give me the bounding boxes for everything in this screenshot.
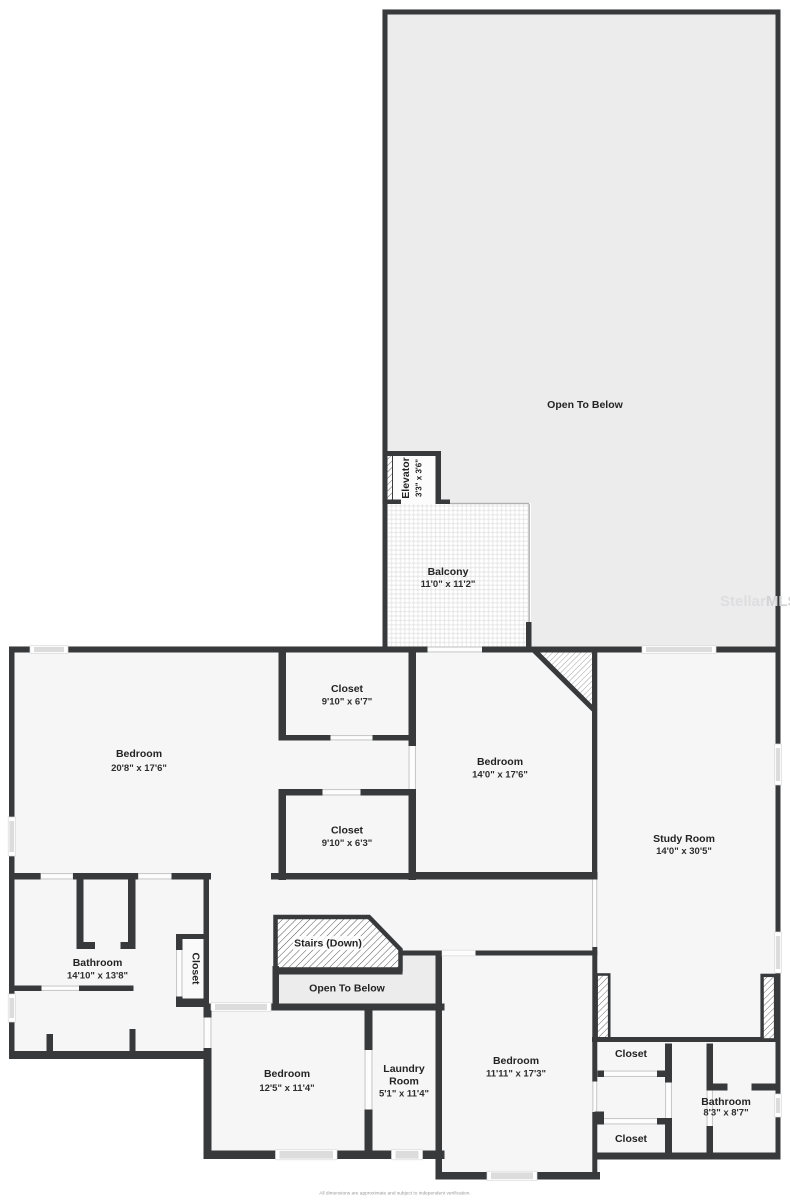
svg-text:11'11" x 17'3": 11'11" x 17'3" — [486, 1069, 546, 1080]
svg-text:Closet: Closet — [615, 1133, 648, 1145]
svg-text:Closet: Closet — [615, 1048, 648, 1060]
svg-text:Laundry: Laundry — [383, 1063, 425, 1075]
svg-text:Bedroom: Bedroom — [493, 1055, 539, 1067]
svg-text:Bedroom: Bedroom — [264, 1068, 310, 1080]
svg-text:Open To Below: Open To Below — [547, 399, 623, 411]
svg-text:Stairs (Down): Stairs (Down) — [294, 938, 362, 950]
svg-text:11'0" x 11'2": 11'0" x 11'2" — [421, 579, 476, 590]
svg-text:14'0" x 30'5": 14'0" x 30'5" — [656, 846, 712, 857]
svg-text:Elevator: Elevator — [400, 457, 412, 498]
svg-text:Bathroom: Bathroom — [73, 957, 123, 969]
svg-text:9'10" x 6'3": 9'10" x 6'3" — [322, 838, 373, 849]
svg-text:12'5" x 11'4": 12'5" x 11'4" — [259, 1083, 314, 1094]
svg-text:20'8" x 17'6": 20'8" x 17'6" — [111, 763, 167, 774]
svg-text:Closet: Closet — [331, 825, 364, 837]
svg-text:Bedroom: Bedroom — [116, 748, 162, 760]
svg-text:14'10" x 13'8": 14'10" x 13'8" — [67, 971, 128, 982]
svg-text:Room: Room — [389, 1076, 419, 1088]
svg-text:5'1" x 11'4": 5'1" x 11'4" — [379, 1089, 429, 1100]
svg-text:Closet: Closet — [331, 683, 364, 695]
svg-text:Open To Below: Open To Below — [309, 983, 385, 995]
svg-text:9'10" x 6'7": 9'10" x 6'7" — [322, 697, 373, 708]
svg-text:All dimensions are approximate: All dimensions are approximate and subje… — [319, 1191, 470, 1197]
svg-text:14'0" x 17'6": 14'0" x 17'6" — [472, 770, 528, 781]
svg-text:Bedroom: Bedroom — [477, 756, 523, 768]
svg-text:Study Room: Study Room — [653, 833, 715, 845]
svg-text:StellarMLS: StellarMLS — [720, 593, 790, 610]
svg-text:3'3" x 3'6": 3'3" x 3'6" — [415, 459, 424, 497]
svg-text:Closet: Closet — [190, 952, 202, 985]
svg-text:8'3" x 8'7": 8'3" x 8'7" — [703, 1108, 748, 1119]
svg-text:Bathroom: Bathroom — [701, 1096, 751, 1108]
svg-text:Balcony: Balcony — [428, 566, 469, 578]
